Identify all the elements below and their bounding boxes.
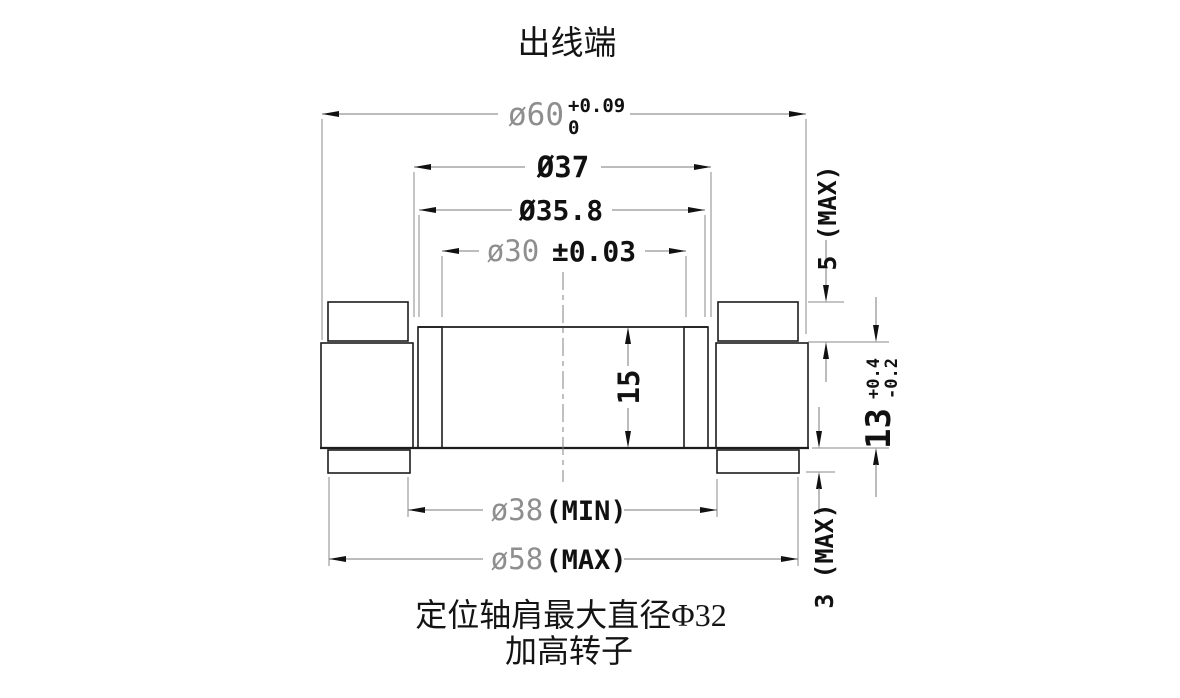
arrowhead-down xyxy=(816,431,822,448)
arrowhead-down xyxy=(625,431,631,448)
dim-h15: 15 xyxy=(612,327,646,448)
arrowhead-up xyxy=(816,472,822,489)
stack-right xyxy=(716,343,808,448)
arrowhead-right xyxy=(688,207,705,213)
hub-wall-right xyxy=(684,327,708,448)
dim-h13: 13 +0.4 -0.2 xyxy=(812,297,902,497)
winding-top-left xyxy=(328,302,408,341)
dim-d37: Ø37 xyxy=(414,150,711,317)
stack-left xyxy=(321,343,413,448)
dim-d38-value: ø38 xyxy=(491,493,543,527)
arrowhead-left xyxy=(419,207,436,213)
arrowhead-right xyxy=(669,248,686,254)
dim-h5: 5 (MAX) xyxy=(808,165,889,382)
dim-d60-tol-lower: 0 xyxy=(568,117,579,139)
dim-h13-tol-upper: +0.4 xyxy=(864,358,884,399)
winding-bottom-left xyxy=(328,450,410,473)
dim-d35-8-value: Ø35.8 xyxy=(518,194,603,227)
rotor-section-drawing: ø60 +0.09 0 Ø37 Ø35.8 ø30 ±0.03 xyxy=(0,0,1180,698)
arrowhead-down xyxy=(823,285,829,302)
drawing-title: 出线端 xyxy=(518,25,617,62)
arrowhead-left xyxy=(329,556,346,562)
dim-d30: ø30 ±0.03 xyxy=(442,234,686,317)
dim-d37-value: Ø37 xyxy=(536,150,589,184)
dim-h15-value: 15 xyxy=(612,370,646,405)
winding-top-right xyxy=(718,302,798,341)
dim-d58-value: ø58 xyxy=(491,542,543,576)
note-shoulder-diameter: 定位轴肩最大直径Φ32 xyxy=(415,597,726,633)
arrowhead-left xyxy=(414,164,431,170)
hub-wall-left xyxy=(418,327,442,448)
dim-d58-qualifier: (MAX) xyxy=(545,545,626,576)
dim-h5-value: 5 (MAX) xyxy=(813,165,842,270)
dim-d38-qualifier: (MIN) xyxy=(545,496,626,527)
arrowhead-up xyxy=(625,327,631,344)
dim-d30-tolerance: ±0.03 xyxy=(552,235,636,268)
winding-bottom-right xyxy=(717,450,799,473)
arrowhead-right xyxy=(781,556,798,562)
arrowhead-left xyxy=(442,248,459,254)
dim-d60-tol-upper: +0.09 xyxy=(568,95,625,117)
note-rotor-variant: 加高转子 xyxy=(505,633,633,669)
dim-d30-value: ø30 xyxy=(487,234,539,268)
arrowhead-up xyxy=(823,342,829,359)
dim-h13-tol-lower: -0.2 xyxy=(882,358,902,399)
arrowhead-right xyxy=(700,507,717,513)
dim-h13-value: 13 xyxy=(859,408,899,449)
dim-d38: ø38 (MIN) xyxy=(408,477,717,527)
arrowhead-right xyxy=(694,164,711,170)
dim-h3: 3 (MAX) xyxy=(806,407,839,609)
dim-d60-value: ø60 xyxy=(508,97,564,133)
arrowhead-right xyxy=(789,111,806,117)
arrowhead-left xyxy=(322,111,339,117)
engineering-drawing-canvas: ø60 +0.09 0 Ø37 Ø35.8 ø30 ±0.03 xyxy=(0,0,1180,698)
arrowhead-down xyxy=(873,325,879,342)
dim-h3-value: 3 (MAX) xyxy=(810,503,839,608)
rotor-body xyxy=(320,302,809,473)
arrowhead-left xyxy=(408,507,425,513)
arrowhead-up xyxy=(873,448,879,465)
